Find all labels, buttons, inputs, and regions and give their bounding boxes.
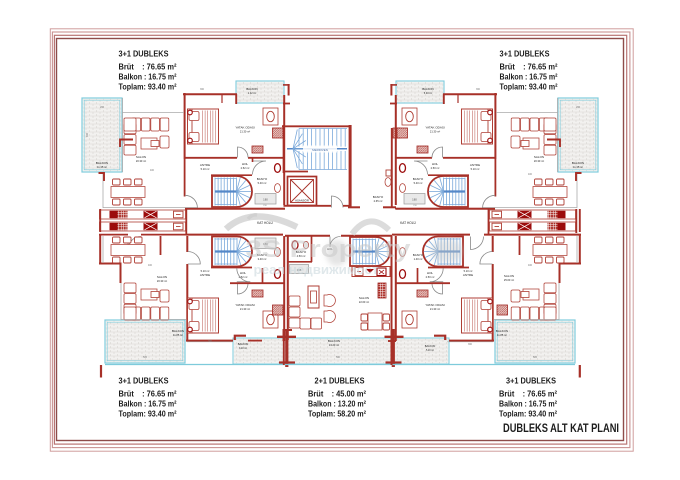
svg-text:3+1 DUBLEKS: 3+1 DUBLEKS: [500, 49, 550, 59]
svg-text:Balkon : 16.75 m²: Balkon : 16.75 m²: [499, 399, 557, 409]
svg-text:25.00 m²: 25.00 m²: [504, 278, 514, 282]
svg-text:Brüt : 76.65 m²: Brüt : 76.65 m²: [500, 62, 558, 72]
svg-text:5.40 m²: 5.40 m²: [258, 181, 267, 185]
svg-text:2.65 m²: 2.65 m²: [374, 199, 383, 203]
svg-text:KAT HOLÜ: KAT HOLÜ: [400, 221, 416, 225]
svg-text:400: 400: [528, 264, 533, 267]
svg-text:505: 505: [143, 356, 148, 359]
svg-text:21.30 m²: 21.30 m²: [240, 307, 250, 311]
svg-text:21.30 m²: 21.30 m²: [430, 307, 440, 311]
svg-text:11.35 m²: 11.35 m²: [97, 165, 107, 169]
svg-text:BALKON: BALKON: [96, 161, 108, 165]
svg-text:21.30 m²: 21.30 m²: [430, 130, 440, 134]
svg-text:Toplam: 93.40 m²: Toplam: 93.40 m²: [500, 82, 558, 92]
svg-text:3+1 DUBLEKS: 3+1 DUBLEKS: [506, 376, 556, 386]
svg-text:11.85 m²: 11.85 m²: [497, 333, 507, 337]
svg-text:SALON: SALON: [534, 155, 544, 159]
svg-text:1.40 m²: 1.40 m²: [414, 257, 423, 261]
svg-text:360: 360: [468, 343, 473, 346]
svg-text:Balkon : 16.75 m²: Balkon : 16.75 m²: [119, 399, 177, 409]
svg-text:360: 360: [200, 88, 205, 91]
svg-text:ASANSÖR: ASANSÖR: [295, 198, 309, 202]
svg-text:5.10 m²: 5.10 m²: [426, 349, 434, 352]
svg-text:260: 260: [100, 106, 105, 109]
svg-text:YATAK ODASI: YATAK ODASI: [425, 126, 445, 130]
svg-text:180: 180: [263, 198, 268, 202]
svg-text:SALON: SALON: [504, 274, 514, 278]
svg-text:180: 180: [412, 198, 417, 202]
svg-text:HOL: HOL: [242, 162, 249, 166]
svg-text:BALKON: BALKON: [246, 87, 257, 91]
svg-text:400: 400: [148, 264, 153, 267]
svg-text:Brüt : 76.65 m²: Brüt : 76.65 m²: [119, 62, 177, 72]
svg-text:230: 230: [413, 205, 417, 207]
svg-text:5.10 m²: 5.10 m²: [464, 269, 473, 273]
svg-text:13.20 m²: 13.20 m²: [329, 343, 339, 347]
svg-text:ANTRE: ANTRE: [470, 163, 480, 167]
svg-text:YATAK ODASI: YATAK ODASI: [235, 126, 255, 130]
svg-text:Balkon : 13.20 m²: Balkon : 13.20 m²: [308, 399, 366, 409]
svg-text:Balkon : 16.75 m²: Balkon : 16.75 m²: [119, 72, 177, 82]
svg-text:BALKON: BALKON: [238, 342, 249, 346]
svg-text:BALKON: BALKON: [425, 344, 436, 348]
svg-text:5.10 m²: 5.10 m²: [201, 269, 210, 273]
svg-text:505: 505: [533, 356, 538, 359]
svg-text:BALKON: BALKON: [172, 329, 184, 333]
svg-text:Toplam: 93.40 m²: Toplam: 93.40 m²: [119, 409, 177, 419]
svg-text:BANYO: BANYO: [413, 253, 424, 257]
svg-text:2.50 m²: 2.50 m²: [431, 166, 440, 170]
svg-text:22.60 m²: 22.60 m²: [359, 300, 369, 304]
svg-text:реал недвижимост: реал недвижимост: [254, 262, 379, 277]
svg-text:BALKON: BALKON: [328, 339, 340, 343]
svg-text:DUBLEKS ALT KAT PLANI: DUBLEKS ALT KAT PLANI: [503, 422, 619, 435]
svg-text:2.50 m²: 2.50 m²: [426, 275, 435, 279]
svg-text:Brüt : 45.00 m²: Brüt : 45.00 m²: [308, 389, 366, 399]
svg-text:BALKON: BALKON: [422, 87, 433, 91]
svg-text:360: 360: [476, 88, 481, 91]
svg-text:5.10 m²: 5.10 m²: [471, 167, 480, 171]
svg-text:260: 260: [576, 106, 581, 109]
svg-text:3S Property: 3S Property: [246, 236, 412, 263]
svg-text:11.85 m²: 11.85 m²: [173, 333, 183, 337]
svg-text:BANYO: BANYO: [373, 195, 384, 199]
svg-text:Balkon : 16.75 m²: Balkon : 16.75 m²: [500, 72, 558, 82]
svg-text:ANTRE: ANTRE: [200, 273, 210, 277]
svg-text:5.40 m²: 5.40 m²: [424, 92, 433, 95]
svg-text:ANTRE: ANTRE: [463, 273, 473, 277]
svg-text:20.30 m²: 20.30 m²: [534, 159, 544, 163]
svg-text:20.30 m²: 20.30 m²: [157, 279, 167, 283]
svg-text:SALON: SALON: [136, 155, 146, 159]
svg-text:Brüt : 76.65 m²: Brüt : 76.65 m²: [499, 389, 557, 399]
svg-text:Brüt : 76.65 m²: Brüt : 76.65 m²: [119, 389, 177, 399]
svg-text:2+1 DUBLEKS: 2+1 DUBLEKS: [315, 376, 365, 386]
svg-text:HOL: HOL: [427, 271, 434, 275]
svg-text:SALON: SALON: [359, 296, 369, 300]
svg-text:HOL: HOL: [240, 271, 247, 275]
svg-text:BALKON: BALKON: [572, 161, 584, 165]
svg-text:480: 480: [86, 132, 89, 137]
svg-text:Toplam: 93.40 m²: Toplam: 93.40 m²: [499, 409, 557, 419]
svg-text:1.42 m²: 1.42 m²: [248, 92, 257, 95]
svg-text:YATAK ODASI: YATAK ODASI: [425, 303, 445, 307]
svg-text:BANYO: BANYO: [413, 177, 424, 181]
svg-text:5.40 m²: 5.40 m²: [414, 181, 423, 185]
svg-text:Toplam: 58.20 m²: Toplam: 58.20 m²: [308, 409, 366, 419]
svg-text:MERDIVEN: MERDIVEN: [312, 148, 328, 152]
svg-text:2.52 m²: 2.52 m²: [241, 166, 250, 170]
svg-text:400: 400: [528, 173, 533, 176]
svg-text:20.30 m²: 20.30 m²: [136, 159, 146, 163]
svg-text:5.10 m²: 5.10 m²: [201, 167, 210, 171]
svg-text:SALON: SALON: [157, 275, 167, 279]
svg-text:ANTRE: ANTRE: [200, 163, 210, 167]
svg-text:560: 560: [336, 356, 341, 359]
svg-text:400: 400: [150, 169, 155, 172]
svg-text:BANYO: BANYO: [257, 177, 268, 181]
svg-text:KAT HOLÜ: KAT HOLÜ: [257, 221, 273, 225]
svg-text:230: 230: [263, 205, 267, 207]
svg-text:3+1 DUBLEKS: 3+1 DUBLEKS: [119, 49, 169, 59]
svg-text:3.10 m²: 3.10 m²: [239, 347, 247, 350]
svg-text:BALKON: BALKON: [496, 329, 508, 333]
svg-text:21.30 m²: 21.30 m²: [240, 130, 250, 134]
svg-text:11.35 m²: 11.35 m²: [573, 165, 583, 169]
svg-text:HOL: HOL: [432, 162, 439, 166]
svg-text:Toplam: 93.40 m²: Toplam: 93.40 m²: [119, 82, 177, 92]
svg-text:YATAK ODASI: YATAK ODASI: [235, 303, 255, 307]
svg-text:3+1 DUBLEKS: 3+1 DUBLEKS: [119, 376, 169, 386]
